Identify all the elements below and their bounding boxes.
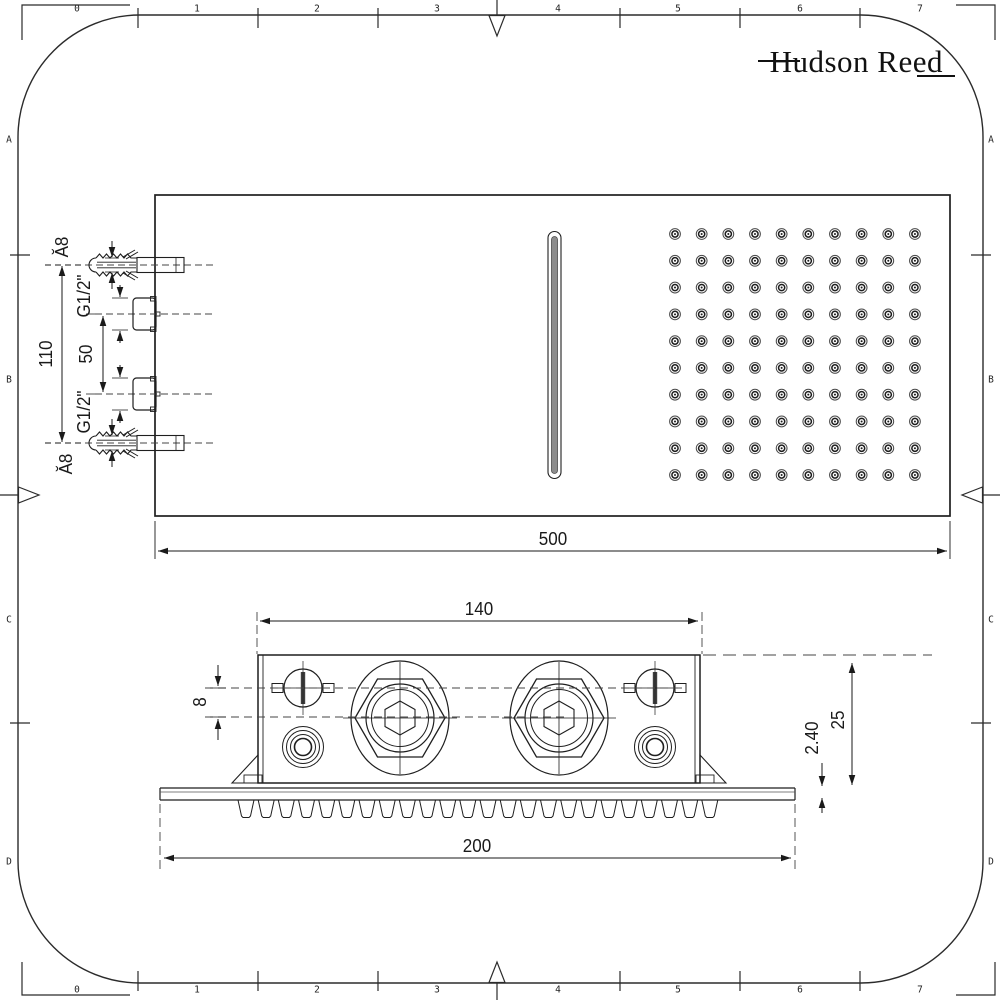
dim-inlet-thread-bottom: G1/2" <box>75 361 93 462</box>
dim-plate-thickness: 2.40 <box>803 687 821 788</box>
dim-mount-width: 140 <box>428 600 529 618</box>
ruler-label: 6 <box>797 4 803 15</box>
ruler-label: B <box>988 375 994 386</box>
ruler-label: 5 <box>675 985 681 996</box>
dim-anchor-hole-bottom: Ă8 <box>57 413 75 514</box>
technical-drawing-sheet: Hudson Reed 0123456701234567ABCDABCD Ă8 … <box>0 0 1000 1000</box>
ruler-label: 0 <box>74 985 80 996</box>
side-dimensions <box>164 621 852 858</box>
ruler-label: D <box>6 857 12 868</box>
ruler-label: 3 <box>434 4 440 15</box>
plan-view <box>45 195 950 559</box>
ruler-label: 0 <box>74 4 80 15</box>
hex-inlet-fitting-icon <box>502 661 616 775</box>
dim-inlet-offset: 8 <box>191 651 209 752</box>
nozzle-teeth-row <box>238 800 718 818</box>
ruler-label: 2 <box>314 985 320 996</box>
ruler-label: 6 <box>797 985 803 996</box>
ruler-label: 3 <box>434 985 440 996</box>
dim-anchor-spacing: 110 <box>37 303 55 404</box>
dim-body-height: 25 <box>829 669 847 770</box>
ruler-label: 4 <box>555 4 561 15</box>
dim-anchor-hole-top: Ă8 <box>53 196 71 297</box>
ruler-label: 7 <box>917 985 923 996</box>
dim-overall-depth: 200 <box>426 837 527 855</box>
ruler-label: D <box>988 857 994 868</box>
ruler-label: C <box>6 615 12 626</box>
dim-overall-width: 500 <box>502 530 603 548</box>
brand-logo: Hudson Reed <box>770 44 943 80</box>
ruler-label: 1 <box>194 985 200 996</box>
hex-inlet-fitting-icon <box>343 661 457 775</box>
face-plate <box>160 788 795 818</box>
ruler-label: 4 <box>555 985 561 996</box>
ruler-label: B <box>6 375 12 386</box>
ruler-label: 2 <box>314 4 320 15</box>
ruler-label: 7 <box>917 4 923 15</box>
ruler-label: C <box>988 615 994 626</box>
ruler-label: 5 <box>675 4 681 15</box>
ruler-label: 1 <box>194 4 200 15</box>
ruler-label: A <box>988 135 994 146</box>
ruler-label: A <box>6 135 12 146</box>
retainer-ring-icon <box>283 727 324 768</box>
retainer-ring-icon <box>635 727 676 768</box>
